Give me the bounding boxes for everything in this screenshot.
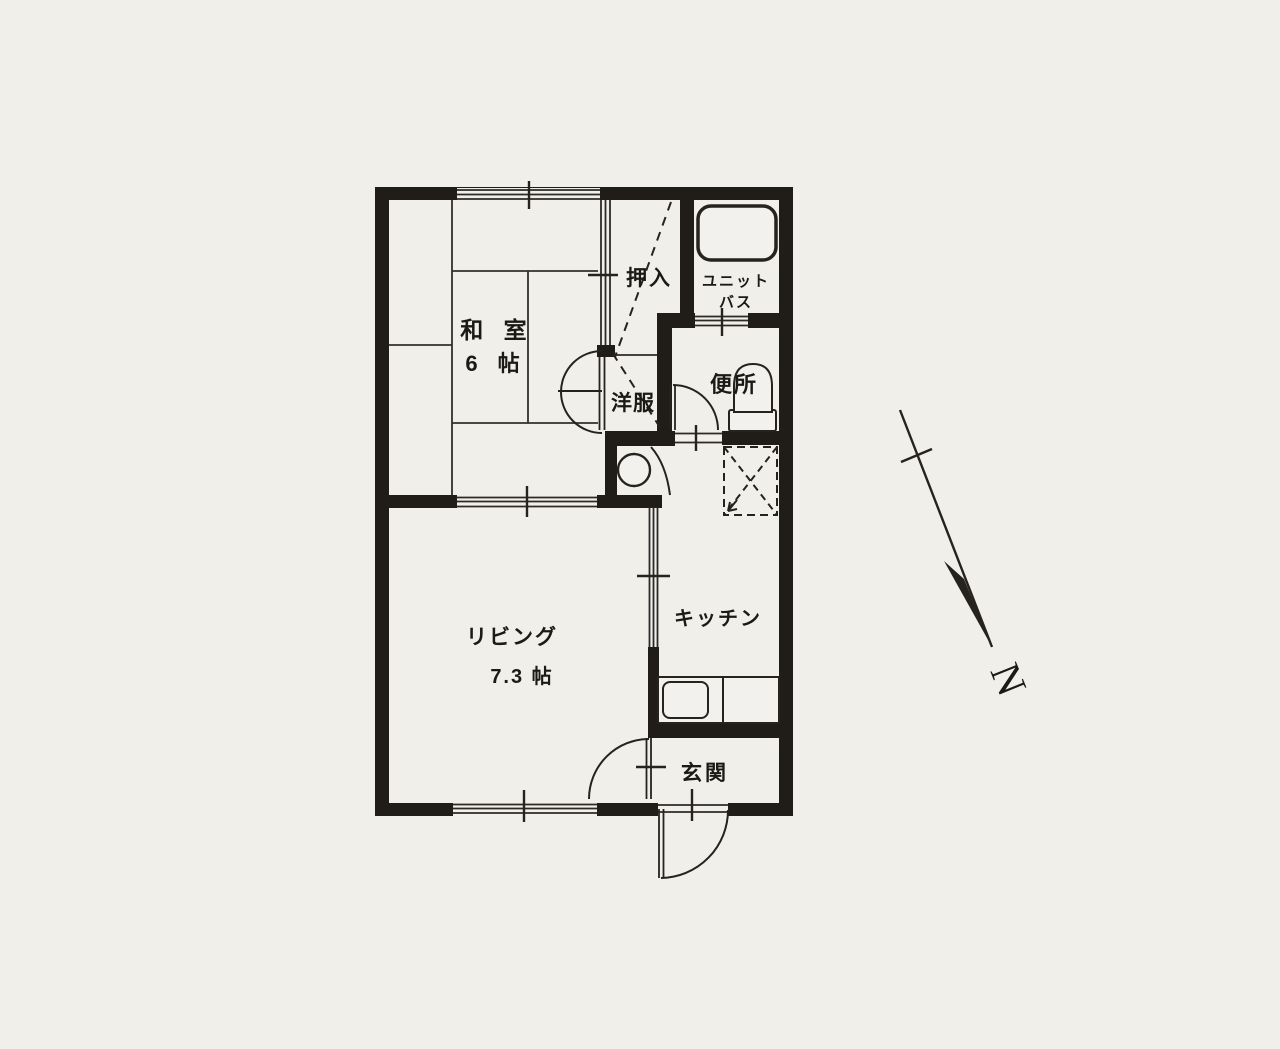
entrance-label: 玄関 (655, 757, 755, 787)
wall-washitsu-south-a (389, 495, 457, 508)
wall-toilet-bottom-right (722, 431, 793, 445)
washing-machine-icon (618, 454, 650, 486)
bathtub-icon (698, 206, 776, 260)
toilet-tank (729, 410, 776, 431)
wall-bath-toilet-b (748, 313, 793, 328)
north-arrow-head (944, 561, 992, 647)
wall-bottom-mid (597, 803, 658, 816)
wardrobe-label: 洋服 (583, 387, 683, 417)
living-size-label: 7.3 帖 (442, 660, 602, 689)
kitchen-label: キッチン (638, 602, 798, 631)
wall-bottom-left (375, 803, 453, 816)
door-swing-arc (661, 810, 728, 878)
washitsu-room-label: 和 室 (427, 311, 567, 345)
floor-plan-drawing (0, 0, 1280, 1049)
entrance-hall-door (589, 738, 651, 799)
unit-bath-label-line2: バス (681, 292, 791, 313)
wall-closet-bottom (605, 431, 675, 446)
kitchen-counter (658, 677, 779, 723)
wall-bath-toilet-a (657, 313, 695, 328)
north-arrow-shaft (900, 410, 992, 647)
door-swing-arc (561, 351, 602, 392)
wall-left (375, 187, 389, 816)
alcove-door-arc (651, 447, 670, 495)
laundry-space-dashed-box (724, 447, 777, 515)
wall-counter-bottom (650, 723, 793, 738)
toilet-room-label: 便所 (684, 367, 784, 399)
unit-bath-label-line1: ユニット (681, 271, 791, 292)
counter-outline (658, 677, 779, 723)
wall-alcove-bottom (605, 495, 662, 508)
washitsu-size-label: 6 帖 (426, 346, 566, 378)
front-door (659, 809, 728, 878)
floor-plan-page: 和 室 6 帖 押入 洋服 ユニット バス 便所 リビング 7.3 帖 キッチン… (0, 0, 1280, 1049)
unit-bath-label: ユニット バス (681, 271, 791, 313)
living-room-label: リビング (432, 621, 592, 651)
north-arrow-icon (900, 410, 992, 647)
wall-bottom-right (728, 803, 793, 816)
door-swing-arc (589, 739, 649, 799)
